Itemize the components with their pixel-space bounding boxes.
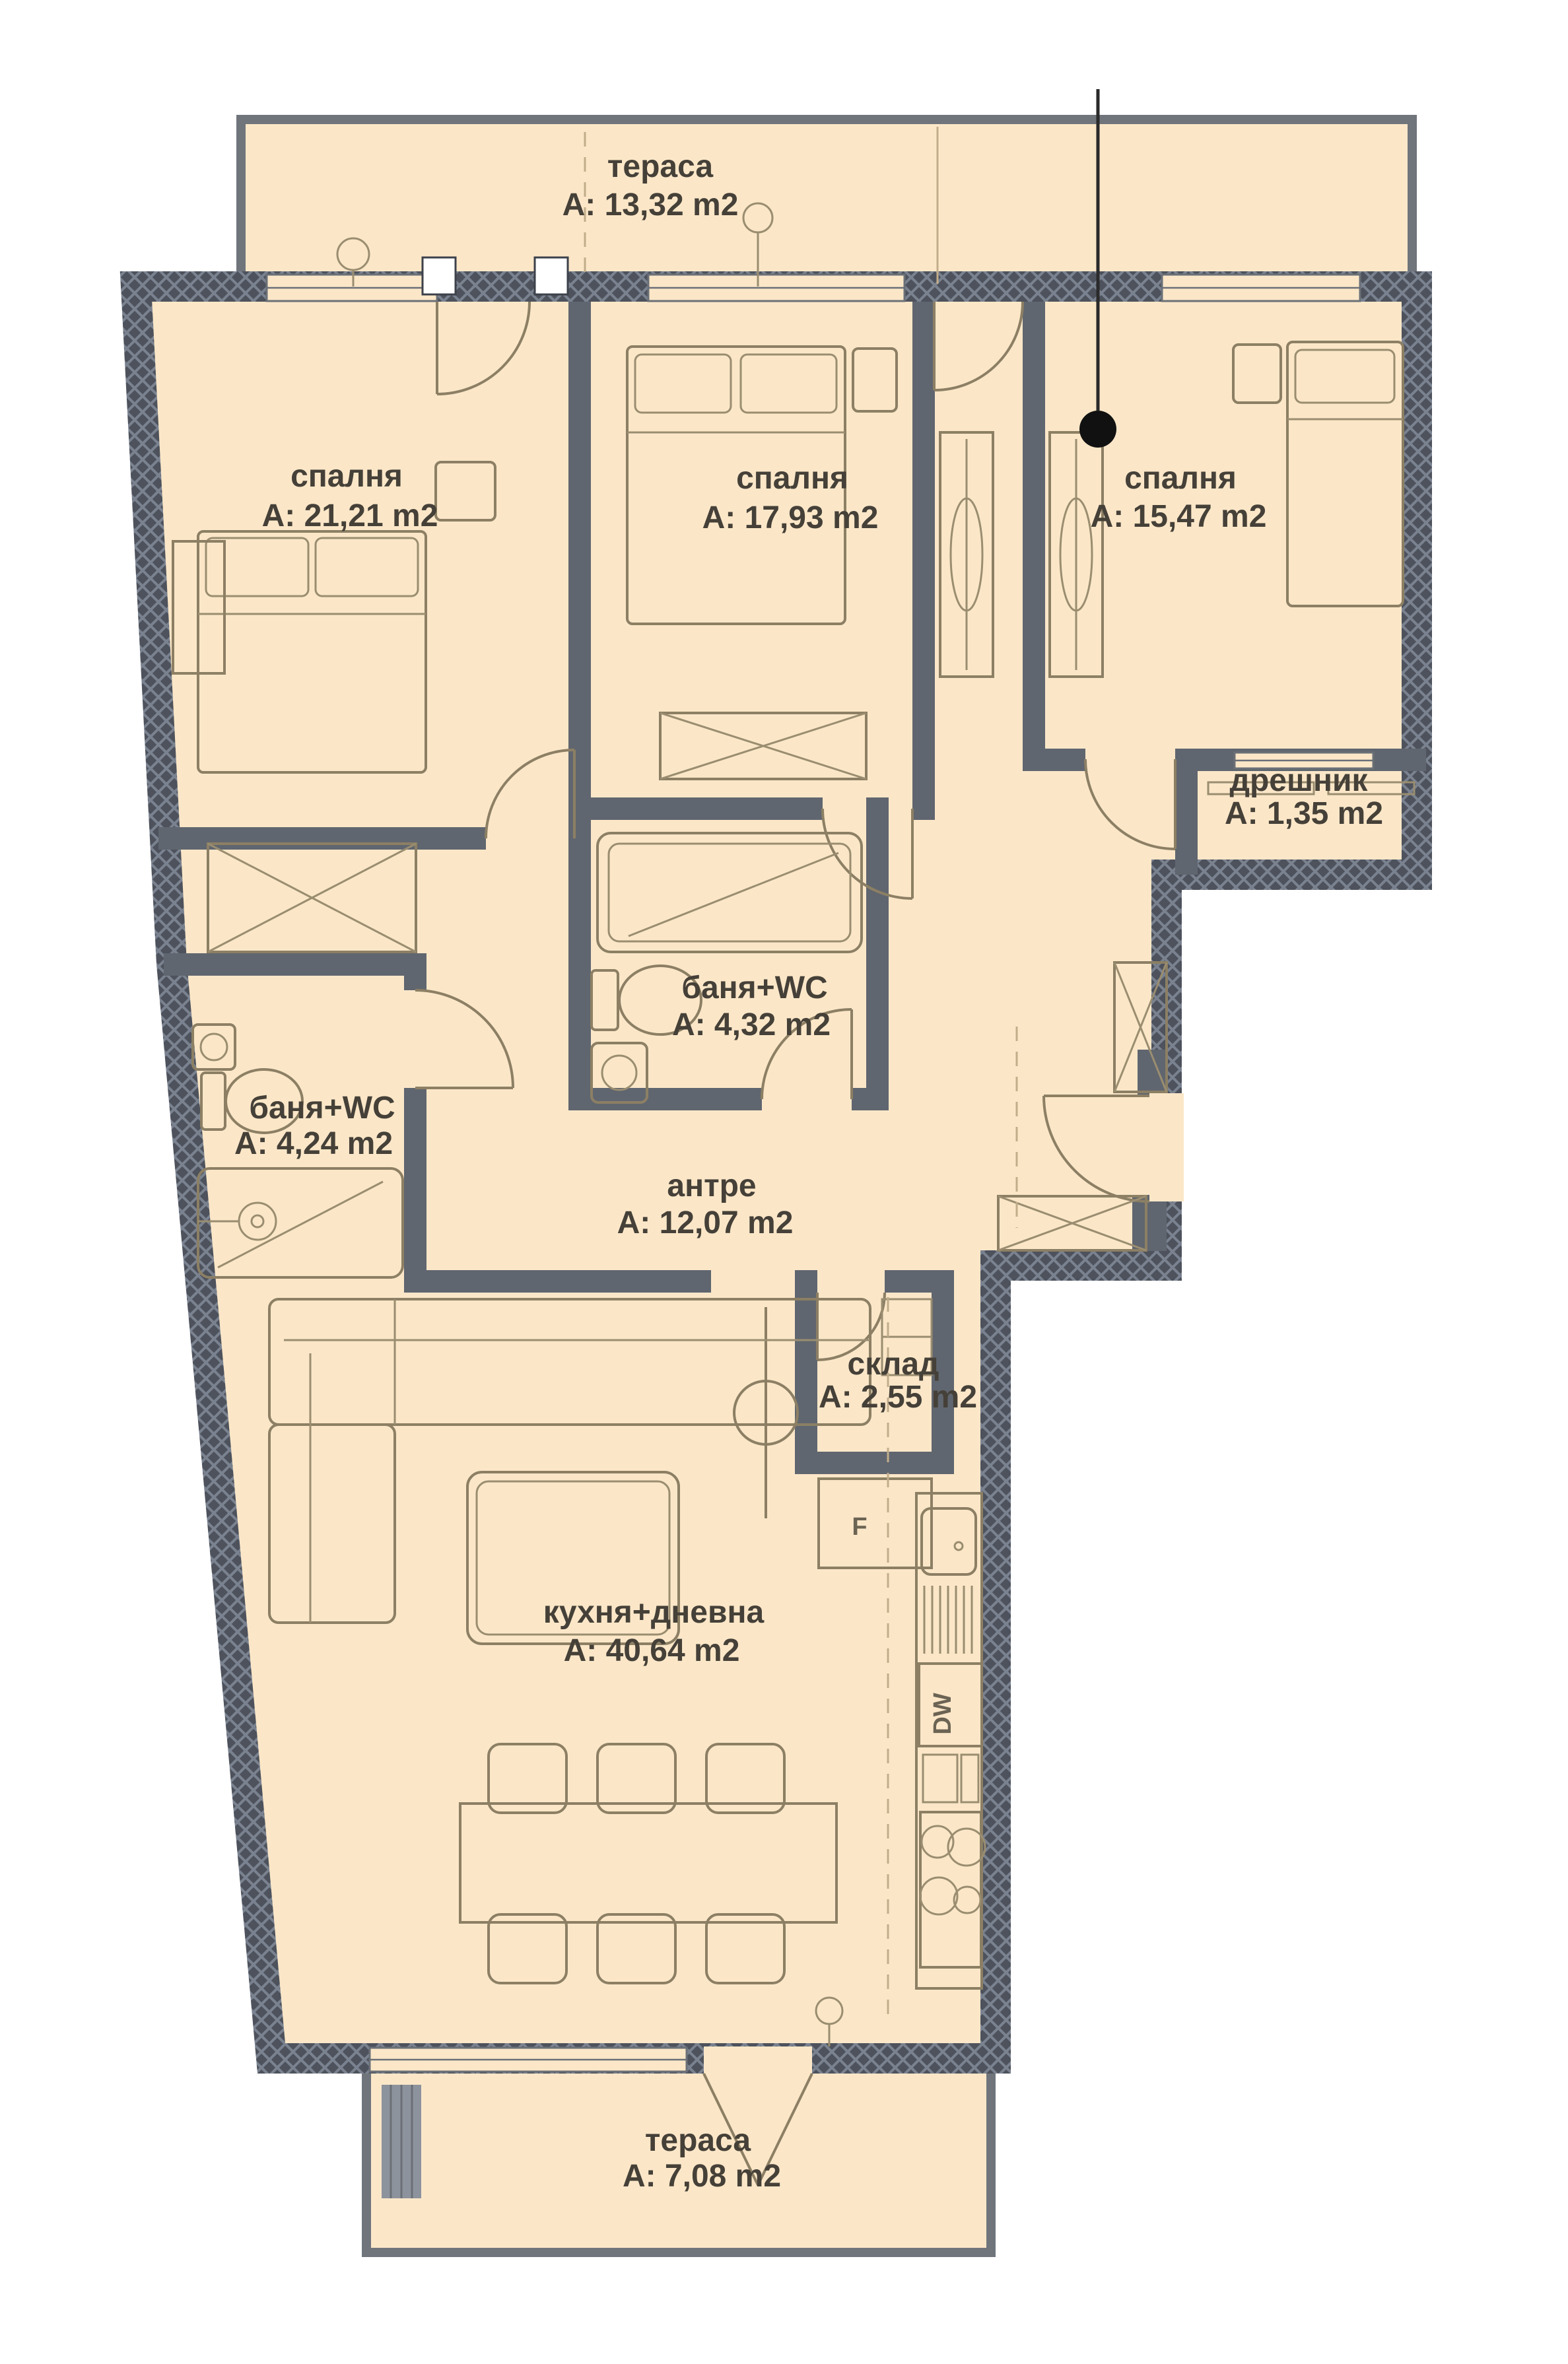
kitchen-drainer xyxy=(924,1586,972,1654)
area-terrace-top: A: 13,32 m2 xyxy=(562,187,739,222)
label-bathroom-left: баня+WC xyxy=(249,1091,395,1126)
label-bedroom-right: спалня xyxy=(1124,461,1237,496)
label-bedroom-left: спалня xyxy=(290,459,403,494)
label-hallway: антре xyxy=(667,1168,756,1203)
marker-dot xyxy=(1079,411,1116,448)
area-terrace-bottom: A: 7,08 m2 xyxy=(623,2159,781,2194)
area-bedroom-left: A: 21,21 m2 xyxy=(262,498,438,533)
window-bedroom-middle xyxy=(648,275,904,301)
area-bedroom-right: A: 15,47 m2 xyxy=(1091,499,1267,534)
area-bedroom-middle: A: 17,93 m2 xyxy=(702,500,879,535)
area-hallway: A: 12,07 m2 xyxy=(617,1205,794,1240)
label-terrace-top: тераса xyxy=(607,149,714,184)
floor-plan-drawing: тераса A: 13,32 m2 спалня A: 21,21 m2 сп… xyxy=(0,0,1568,2364)
terrace-top-outline xyxy=(241,119,1412,287)
window-bedroom-left xyxy=(267,275,437,301)
label-kitchen-living: кухня+дневна xyxy=(543,1595,765,1630)
area-closet: A: 1,35 m2 xyxy=(1225,796,1383,831)
window-bedroom-right xyxy=(1162,275,1360,301)
label-fridge: F xyxy=(852,1513,867,1541)
radiator-terrace xyxy=(382,2085,421,2198)
label-closet: дрешник xyxy=(1229,763,1368,798)
label-bedroom-middle: спалня xyxy=(736,461,848,496)
terrace-door-opening xyxy=(704,2046,812,2074)
area-kitchen-living: A: 40,64 m2 xyxy=(564,1633,740,1668)
label-terrace-bottom: тераса xyxy=(645,2123,751,2158)
entrance-opening xyxy=(1149,1093,1184,1201)
area-bathroom-left: A: 4,24 m2 xyxy=(234,1126,393,1161)
window-living-bottom xyxy=(370,2048,687,2072)
label-dishwasher: DW xyxy=(929,1693,957,1734)
area-storage: A: 2,55 m2 xyxy=(819,1380,977,1415)
label-bathroom-middle: баня+WC xyxy=(681,970,827,1005)
apartment-outline xyxy=(136,287,1417,2058)
column-post-left xyxy=(423,257,456,294)
column-post-right xyxy=(535,257,568,294)
label-storage: склад xyxy=(848,1347,939,1382)
area-bathroom-middle: A: 4,32 m2 xyxy=(672,1007,831,1042)
floor-plan-page: тераса A: 13,32 m2 спалня A: 21,21 m2 сп… xyxy=(0,0,1568,2364)
